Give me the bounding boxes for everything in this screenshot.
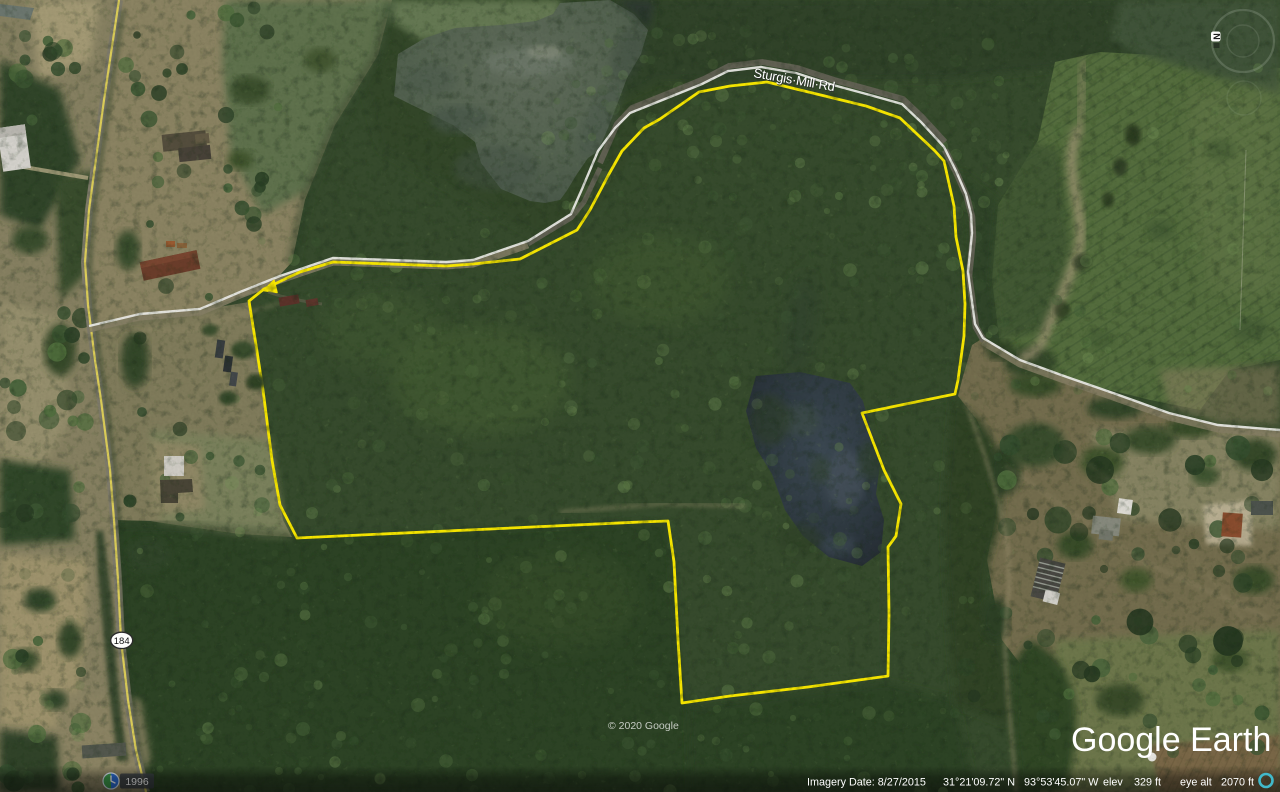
svg-text:31°21'09.72" N: 31°21'09.72" N <box>943 777 1015 789</box>
svg-text:Google Earth: Google Earth <box>1071 721 1271 759</box>
svg-text:N: N <box>1212 33 1222 40</box>
svg-text:Imagery Date: 8/27/2015: Imagery Date: 8/27/2015 <box>807 777 926 789</box>
svg-text:93°53'45.07" W: 93°53'45.07" W <box>1024 777 1099 789</box>
svg-text:elev: elev <box>1103 777 1123 789</box>
svg-text:2070 ft: 2070 ft <box>1221 777 1254 789</box>
svg-text:184: 184 <box>114 636 130 647</box>
svg-text:© 2020 Google: © 2020 Google <box>608 720 679 732</box>
svg-text:329 ft: 329 ft <box>1134 777 1161 789</box>
svg-text:eye alt: eye alt <box>1180 777 1212 789</box>
